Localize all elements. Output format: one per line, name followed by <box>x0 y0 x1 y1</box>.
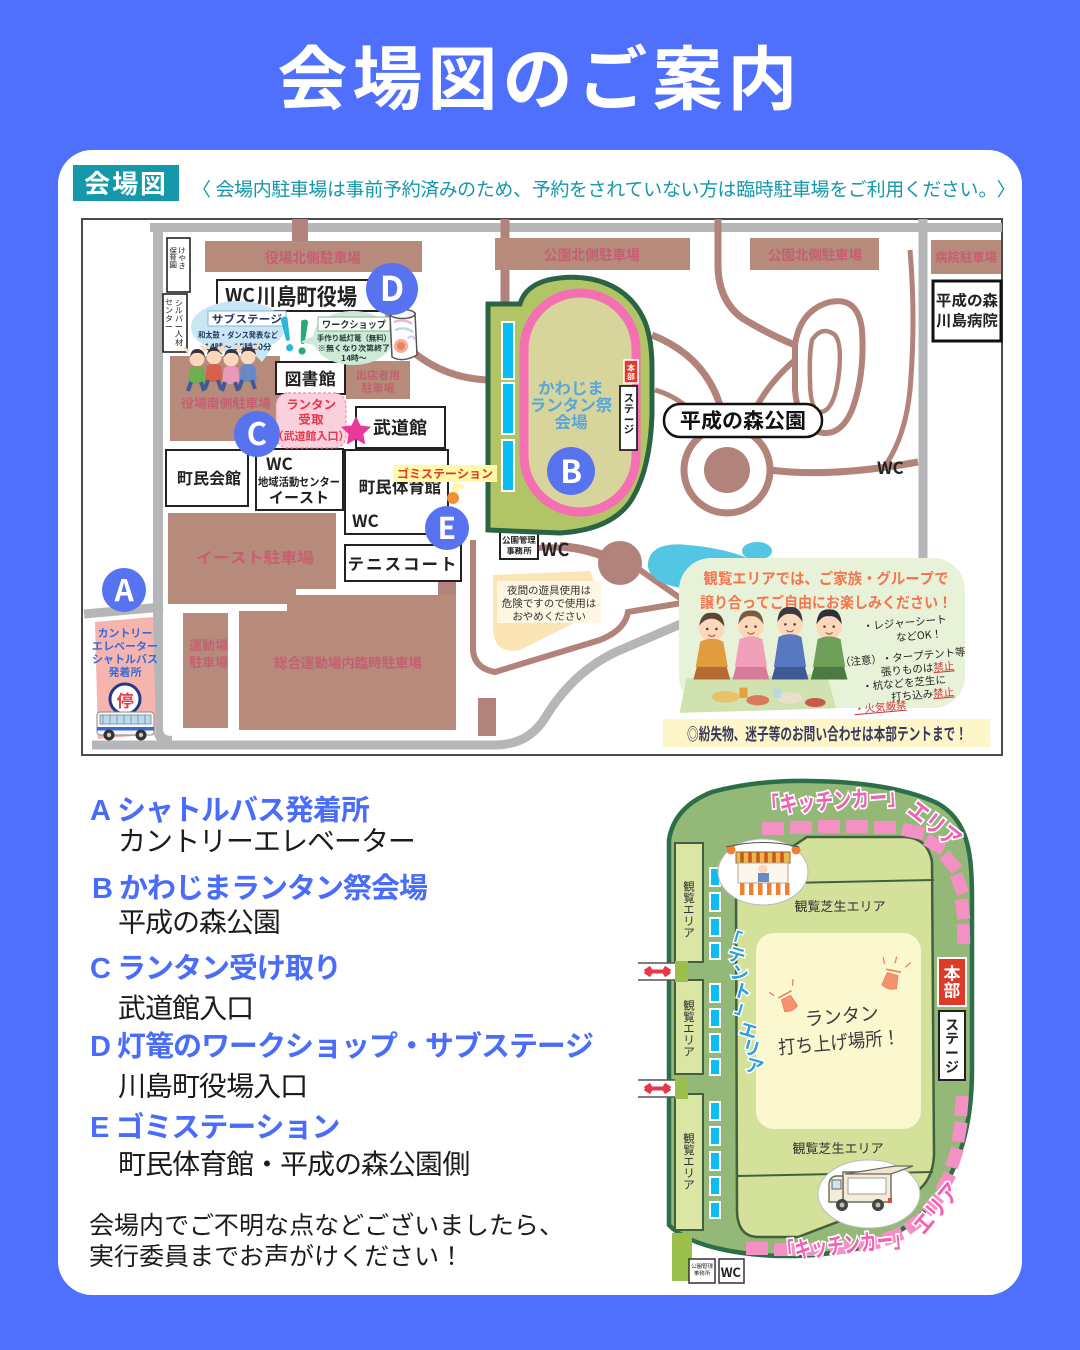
svg-text:病院駐車場: 病院駐車場 <box>935 247 997 266</box>
svg-text:役場北側駐車場: 役場北側駐車場 <box>265 247 361 268</box>
svg-text:停: 停 <box>116 687 134 712</box>
svg-text:観覧エリア: 観覧エリア <box>681 999 697 1057</box>
svg-text:イースト: イースト <box>269 487 329 508</box>
svg-text:14時～: 14時～ <box>341 353 366 364</box>
svg-text:おやめください: おやめください <box>512 609 586 624</box>
svg-text:ステージ: ステージ <box>622 392 637 434</box>
svg-text:駐車場: 駐車場 <box>362 380 395 396</box>
svg-text:ステージ: ステージ <box>942 1017 962 1073</box>
svg-text:会場: 会場 <box>555 409 588 433</box>
svg-text:事務所: 事務所 <box>505 545 532 557</box>
svg-text:観覧エリアでは、ご家族・グループで: 観覧エリアでは、ご家族・グループで <box>704 567 949 589</box>
svg-text:WC: WC <box>352 507 379 532</box>
svg-text:保育園: 保育園 <box>168 246 179 269</box>
svg-text:WC: WC <box>541 536 569 562</box>
svg-text:公園北側駐車場: 公園北側駐車場 <box>768 245 862 265</box>
svg-text:WC: WC <box>266 450 293 475</box>
svg-text:川島町役場: 川島町役場 <box>256 278 357 312</box>
svg-text:観覧エリア: 観覧エリア <box>681 880 697 938</box>
svg-text:WC: WC <box>721 1262 742 1281</box>
svg-text:（武道館入口）: （武道館入口） <box>273 428 350 444</box>
svg-text:ワークショップ: ワークショップ <box>322 316 386 331</box>
svg-text:本部: 本部 <box>626 364 637 381</box>
svg-text:発着所: 発着所 <box>109 664 143 680</box>
svg-text:A: A <box>113 566 134 610</box>
svg-text:和太鼓・ダンス発表など: 和太鼓・ダンス発表など <box>198 329 278 341</box>
svg-text:ゴミステーション: ゴミステーション <box>397 465 493 482</box>
svg-text:町民会館: 町民会館 <box>177 465 241 489</box>
svg-text:WC: WC <box>877 454 904 479</box>
svg-text:観覧エリア: 観覧エリア <box>681 1132 697 1190</box>
svg-text:B: B <box>560 447 582 493</box>
svg-text:事務所: 事務所 <box>694 1269 711 1277</box>
svg-text:公園北側駐車場: 公園北側駐車場 <box>544 244 640 265</box>
svg-text:C: C <box>247 409 267 454</box>
svg-text:平成の森公園: 平成の森公園 <box>680 405 806 435</box>
svg-text:◎紛失物、迷子等のお問い合わせは本部テントまで！: ◎紛失物、迷子等のお問い合わせは本部テントまで！ <box>687 720 967 745</box>
svg-text:平成の森: 平成の森 <box>936 289 999 311</box>
svg-text:テニスコート: テニスコート <box>348 551 459 575</box>
svg-text:センター: センター <box>164 298 175 330</box>
svg-text:受取: 受取 <box>298 409 324 428</box>
svg-text:観覧芝生エリア: 観覧芝生エリア <box>792 1138 883 1157</box>
svg-text:川島病院: 川島病院 <box>936 309 999 331</box>
svg-text:D: D <box>380 262 404 311</box>
svg-text:観覧芝生エリア: 観覧芝生エリア <box>794 896 885 915</box>
svg-text:総合運動場内臨時駐車場: 総合運動場内臨時駐車場 <box>274 653 422 673</box>
svg-text:サブステージ: サブステージ <box>212 311 282 327</box>
svg-text:図書館: 図書館 <box>285 365 336 390</box>
svg-text:武道館: 武道館 <box>373 414 427 440</box>
svg-text:駐車場: 駐車場 <box>189 652 228 671</box>
svg-text:イースト駐車場: イースト駐車場 <box>196 547 314 568</box>
svg-text:シルバー人材: シルバー人材 <box>174 298 185 347</box>
svg-text:E: E <box>438 504 456 548</box>
svg-text:本部: 本部 <box>940 964 965 999</box>
